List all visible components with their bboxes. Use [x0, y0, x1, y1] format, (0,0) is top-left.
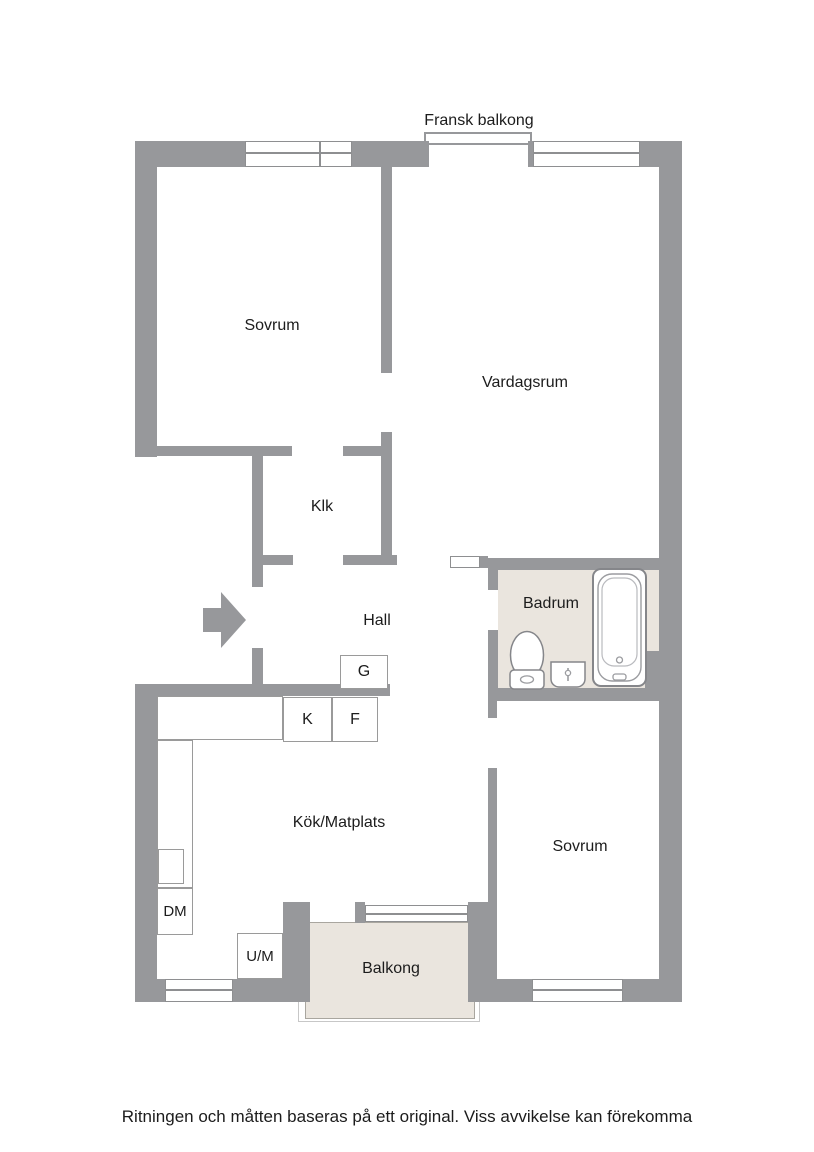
freezer-box: F	[332, 697, 378, 742]
wall-segment	[135, 979, 165, 1002]
wall-segment	[488, 701, 497, 718]
room-label-living-room: Vardagsrum	[482, 374, 568, 392]
wall-segment	[263, 555, 293, 565]
wall-segment	[343, 555, 397, 565]
room-label-bathroom: Badrum	[523, 595, 579, 613]
wall-segment	[135, 141, 157, 457]
wall-segment	[488, 768, 497, 979]
wall-segment	[233, 979, 283, 1002]
wall-segment	[135, 684, 157, 1002]
wardrobe-label: G	[358, 663, 370, 681]
fridge-box: K	[283, 697, 332, 742]
dishwasher-label: DM	[163, 903, 186, 920]
wall-segment	[488, 558, 498, 590]
room-label-french-balcony: Fransk balkong	[424, 112, 533, 130]
wall-segment	[623, 979, 682, 1002]
dishwasher-box: DM	[157, 888, 193, 935]
wall-segment	[381, 432, 392, 565]
window	[533, 141, 640, 167]
wall-segment	[497, 979, 532, 1002]
wall-segment	[343, 446, 381, 456]
room-label-hall: Hall	[363, 612, 391, 630]
kitchen-counter-top	[157, 696, 283, 740]
oven-microwave-box: U/M	[237, 933, 283, 979]
window	[532, 979, 623, 1002]
room-label-balcony: Balkong	[362, 960, 420, 978]
room-label-bedroom-top: Sovrum	[244, 317, 299, 335]
kitchen-sink	[158, 849, 184, 884]
room-label-bedroom-bottom: Sovrum	[552, 838, 607, 856]
wall-segment	[355, 902, 365, 923]
bathtub-icon	[592, 568, 647, 687]
disclaimer-text: Ritningen och måtten baseras på ett orig…	[0, 1107, 814, 1127]
floor-plan-page: G K F DM U/M	[0, 0, 814, 1152]
window	[165, 979, 233, 1002]
bathroom-sink-icon	[549, 660, 587, 689]
wall-segment	[352, 141, 429, 167]
wall-segment	[252, 446, 263, 587]
entrance-arrow-icon	[203, 590, 247, 650]
wall-segment	[135, 446, 292, 456]
wall-segment	[480, 556, 488, 568]
freezer-label: F	[350, 711, 360, 729]
wardrobe-box: G	[340, 655, 388, 689]
balcony-door-glazing	[365, 905, 468, 922]
fridge-label: K	[302, 711, 313, 729]
wall-segment	[488, 630, 498, 688]
room-label-kitchen-dining: Kök/Matplats	[293, 814, 385, 832]
bathroom-vent-window	[450, 556, 480, 568]
french-balcony-railing	[424, 132, 532, 145]
wall-segment	[659, 141, 682, 1002]
oven-microwave-label: U/M	[246, 948, 274, 965]
wall-segment	[283, 902, 310, 1002]
room-label-walk-in-closet: Klk	[311, 498, 333, 516]
wall-segment	[381, 167, 392, 373]
toilet-icon	[508, 630, 546, 691]
window	[245, 141, 352, 167]
